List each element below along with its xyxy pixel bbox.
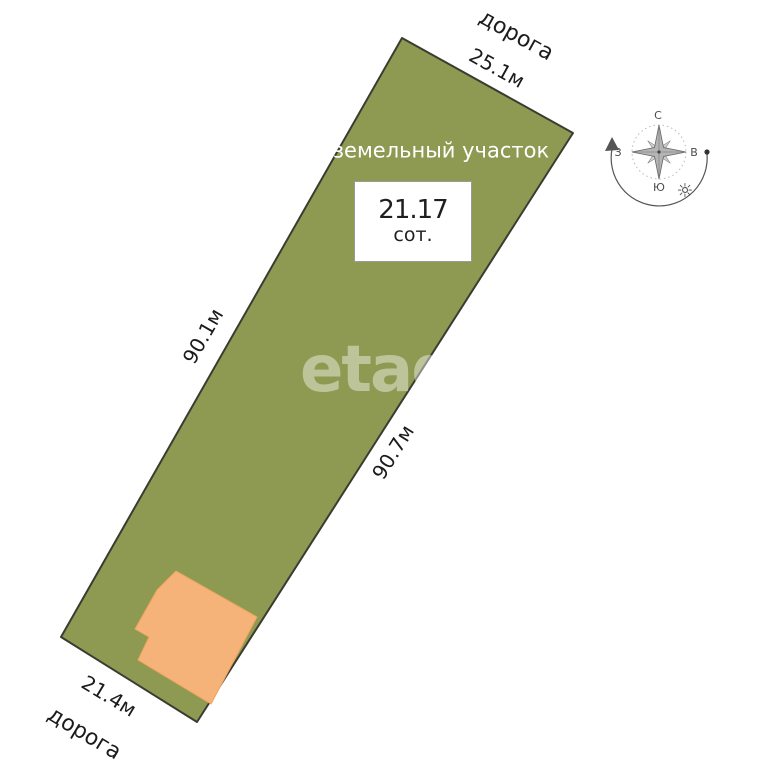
compass-center-dot [657,150,660,153]
arc-arrowhead-icon [605,137,619,151]
area-value: 21.17 [378,197,447,224]
plot-title: земельный участок [333,141,549,162]
land-plot-diagram: etag дорога 25.1м земельный участок 21.1… [0,0,768,768]
sun-icon: ☼ [676,180,693,202]
compass-rose: С Ю З В ☼ [600,93,725,208]
area-unit: сот. [393,225,432,246]
area-box: 21.17 сот. [354,181,472,262]
compass-east-label: В [690,146,698,159]
compass-south-label: Ю [653,181,665,194]
watermark: etag [300,338,455,402]
arc-start-dot [704,149,709,154]
compass-north-label: С [654,109,662,122]
